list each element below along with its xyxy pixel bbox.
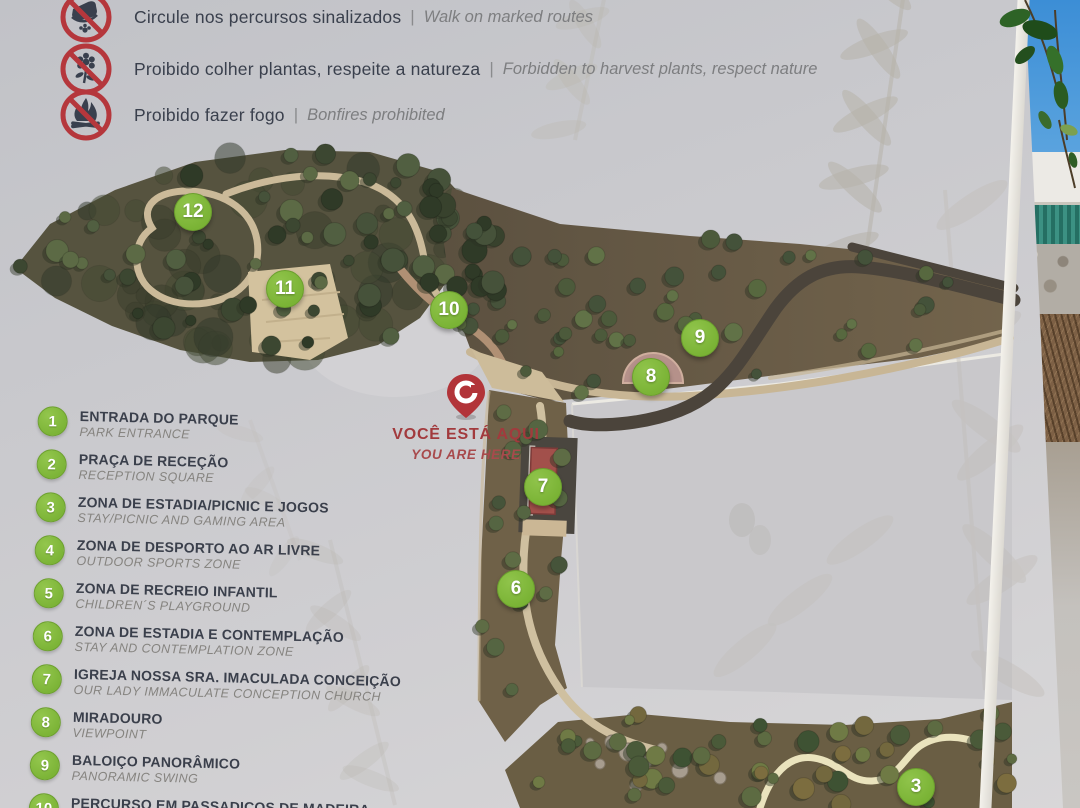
location-pin-icon <box>386 372 546 420</box>
legend-label-en: RECEPTION SQUARE <box>78 468 228 486</box>
rule-divider: | <box>410 7 414 27</box>
rule-label-en: Bonfires prohibited <box>307 106 445 125</box>
legend-number-badge: 5 <box>33 578 64 609</box>
legend-number-badge: 10 <box>29 793 60 808</box>
no-walking-off-trail-icon <box>58 0 114 45</box>
rule-divider: | <box>294 105 298 125</box>
legend-item: 2PRAÇA DE RECEÇÃORECEPTION SQUARE <box>36 449 457 492</box>
map-marker-3: 3 <box>897 768 935 806</box>
legend-number-badge: 3 <box>35 492 66 523</box>
legend-texts: ZONA DE RECREIO INFANTILCHILDREN´S PLAYG… <box>75 579 278 617</box>
legend-texts: ZONA DE DESPORTO AO AR LIVREOUTDOOR SPOR… <box>76 536 320 575</box>
rule-item: Proibido fazer fogo|Bonfires prohibited <box>58 86 445 144</box>
legend-item: 3ZONA DE ESTADIA/PICNIC E JOGOSSTAY/PICN… <box>35 492 456 535</box>
rule-divider: | <box>489 59 493 79</box>
map-marker-11: 11 <box>266 270 304 308</box>
park-sign-photo: 12111098763 VOCÊ ESTÁ AQUI YOU ARE HERE … <box>0 0 1080 808</box>
legend-label-pt: PERCURSO EM PASSADIÇOS DE MADEIRA <box>71 794 370 808</box>
legend-number-badge: 1 <box>37 406 68 437</box>
legend-texts: MIRADOUROVIEWPOINT <box>72 708 162 743</box>
legend-label-en: CHILDREN´S PLAYGROUND <box>75 597 277 617</box>
legend-number-badge: 7 <box>31 664 62 695</box>
legend-item: 6ZONA DE ESTADIA E CONTEMPLAÇÃOSTAY AND … <box>32 621 453 664</box>
legend-number-badge: 8 <box>30 707 61 738</box>
legend-item: 10PERCURSO EM PASSADIÇOS DE MADEIRAROUTE… <box>28 793 449 808</box>
map-marker-9: 9 <box>681 319 719 357</box>
legend-texts: PRAÇA DE RECEÇÃORECEPTION SQUARE <box>78 450 228 486</box>
legend-texts: IGREJA NOSSA SRA. IMACULADA CONCEIÇÃOOUR… <box>73 665 401 705</box>
legend-number-badge: 9 <box>30 750 61 781</box>
map-marker-6: 6 <box>497 570 535 608</box>
legend-list: 1ENTRADA DO PARQUEPARK ENTRANCE2PRAÇA DE… <box>28 406 458 808</box>
legend-item: 5ZONA DE RECREIO INFANTILCHILDREN´S PLAY… <box>33 578 454 621</box>
legend-label-en: VIEWPOINT <box>72 726 162 743</box>
sign-board: 12111098763 VOCÊ ESTÁ AQUI YOU ARE HERE … <box>0 0 1080 808</box>
legend-number-badge: 4 <box>34 535 65 566</box>
rule-label-pt: Proibido colher plantas, respeite a natu… <box>134 59 480 80</box>
legend-texts: PERCURSO EM PASSADIÇOS DE MADEIRAROUTE O… <box>70 794 369 808</box>
no-bonfires-icon <box>58 87 114 143</box>
legend-texts: ZONA DE ESTADIA/PICNIC E JOGOSSTAY/PICNI… <box>77 493 329 532</box>
rule-label-en: Forbidden to harvest plants, respect nat… <box>503 60 818 79</box>
legend-texts: BALOIÇO PANORÂMICOPANORAMIC SWING <box>71 751 240 788</box>
map-marker-12: 12 <box>174 193 212 231</box>
legend-texts: ENTRADA DO PARQUEPARK ENTRANCE <box>79 407 239 444</box>
rule-label-pt: Circule nos percursos sinalizados <box>134 7 401 28</box>
legend-number-badge: 6 <box>32 621 63 652</box>
legend-texts: ZONA DE ESTADIA E CONTEMPLAÇÃOSTAY AND C… <box>74 622 344 661</box>
rule-label-en: Walk on marked routes <box>424 8 593 27</box>
legend-label-pt: MIRADOURO <box>73 708 163 728</box>
map-marker-8: 8 <box>632 358 670 396</box>
foreground-leaves <box>985 0 1080 190</box>
legend-number-badge: 2 <box>36 449 67 480</box>
legend-item: 9BALOIÇO PANORÂMICOPANORAMIC SWING <box>29 750 450 793</box>
legend-item: 4ZONA DE DESPORTO AO AR LIVREOUTDOOR SPO… <box>34 535 455 578</box>
legend-item: 7IGREJA NOSSA SRA. IMACULADA CONCEIÇÃOOU… <box>31 664 452 707</box>
legend-item: 8MIRADOUROVIEWPOINT <box>30 707 451 750</box>
rule-label-pt: Proibido fazer fogo <box>134 105 285 126</box>
map-marker-10: 10 <box>430 291 468 329</box>
map-marker-7: 7 <box>524 468 562 506</box>
